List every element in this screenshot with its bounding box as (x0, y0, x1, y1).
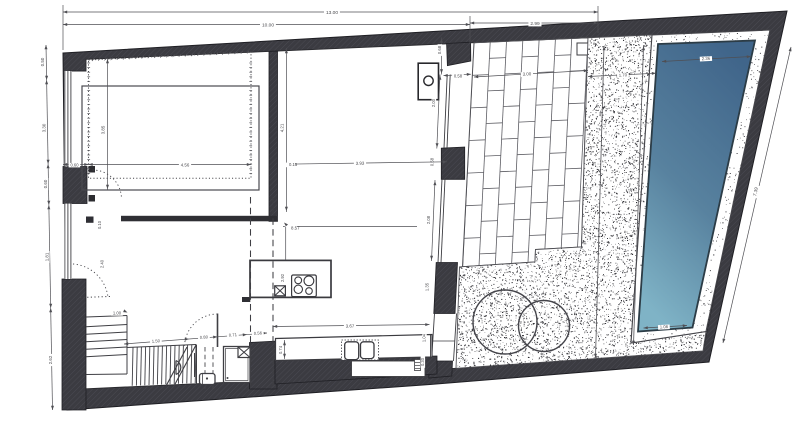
svg-text:4.21: 4.21 (280, 123, 285, 132)
svg-text:0.50: 0.50 (40, 57, 45, 66)
svg-text:0.74: 0.74 (278, 345, 283, 354)
svg-text:0.68: 0.68 (437, 45, 442, 54)
svg-text:3.30: 3.30 (42, 123, 47, 132)
svg-text:2.62: 2.62 (48, 355, 53, 364)
svg-text:0.15: 0.15 (289, 162, 298, 167)
svg-text:10.00: 10.00 (262, 23, 274, 29)
svg-text:2.00: 2.00 (431, 98, 436, 107)
svg-text:0.60: 0.60 (43, 179, 48, 188)
svg-text:2.08: 2.08 (426, 215, 431, 224)
svg-text:8.57: 8.57 (291, 226, 300, 231)
svg-text:3.93: 3.93 (356, 161, 365, 166)
svg-text:0.10: 0.10 (97, 220, 102, 229)
svg-text:1.00: 1.00 (113, 311, 122, 316)
svg-text:1.08: 1.08 (660, 324, 669, 329)
svg-text:1.70: 1.70 (619, 72, 628, 77)
svg-text:1.50: 1.50 (152, 338, 161, 344)
svg-text:0.58: 0.58 (454, 74, 463, 79)
svg-text:2.99: 2.99 (530, 21, 540, 27)
svg-text:0.71: 0.71 (229, 332, 238, 338)
svg-text:2.36: 2.36 (702, 56, 711, 61)
svg-text:13.00: 13.00 (326, 10, 338, 16)
svg-text:0.30: 0.30 (420, 357, 425, 366)
svg-text:2.40: 2.40 (100, 259, 105, 268)
svg-text:3.00: 3.00 (523, 71, 532, 76)
svg-text:1.04: 1.04 (422, 333, 427, 342)
svg-text:3.67: 3.67 (346, 323, 355, 328)
svg-text:0.80: 0.80 (200, 334, 209, 340)
svg-text:3.85: 3.85 (101, 125, 106, 134)
svg-text:2.92: 2.92 (280, 273, 285, 282)
svg-text:0.56: 0.56 (254, 330, 263, 336)
svg-text:4.56: 4.56 (181, 162, 190, 167)
svg-text:1.35: 1.35 (425, 282, 430, 291)
svg-text:1.81: 1.81 (45, 252, 50, 261)
svg-text:0.60: 0.60 (71, 162, 80, 167)
